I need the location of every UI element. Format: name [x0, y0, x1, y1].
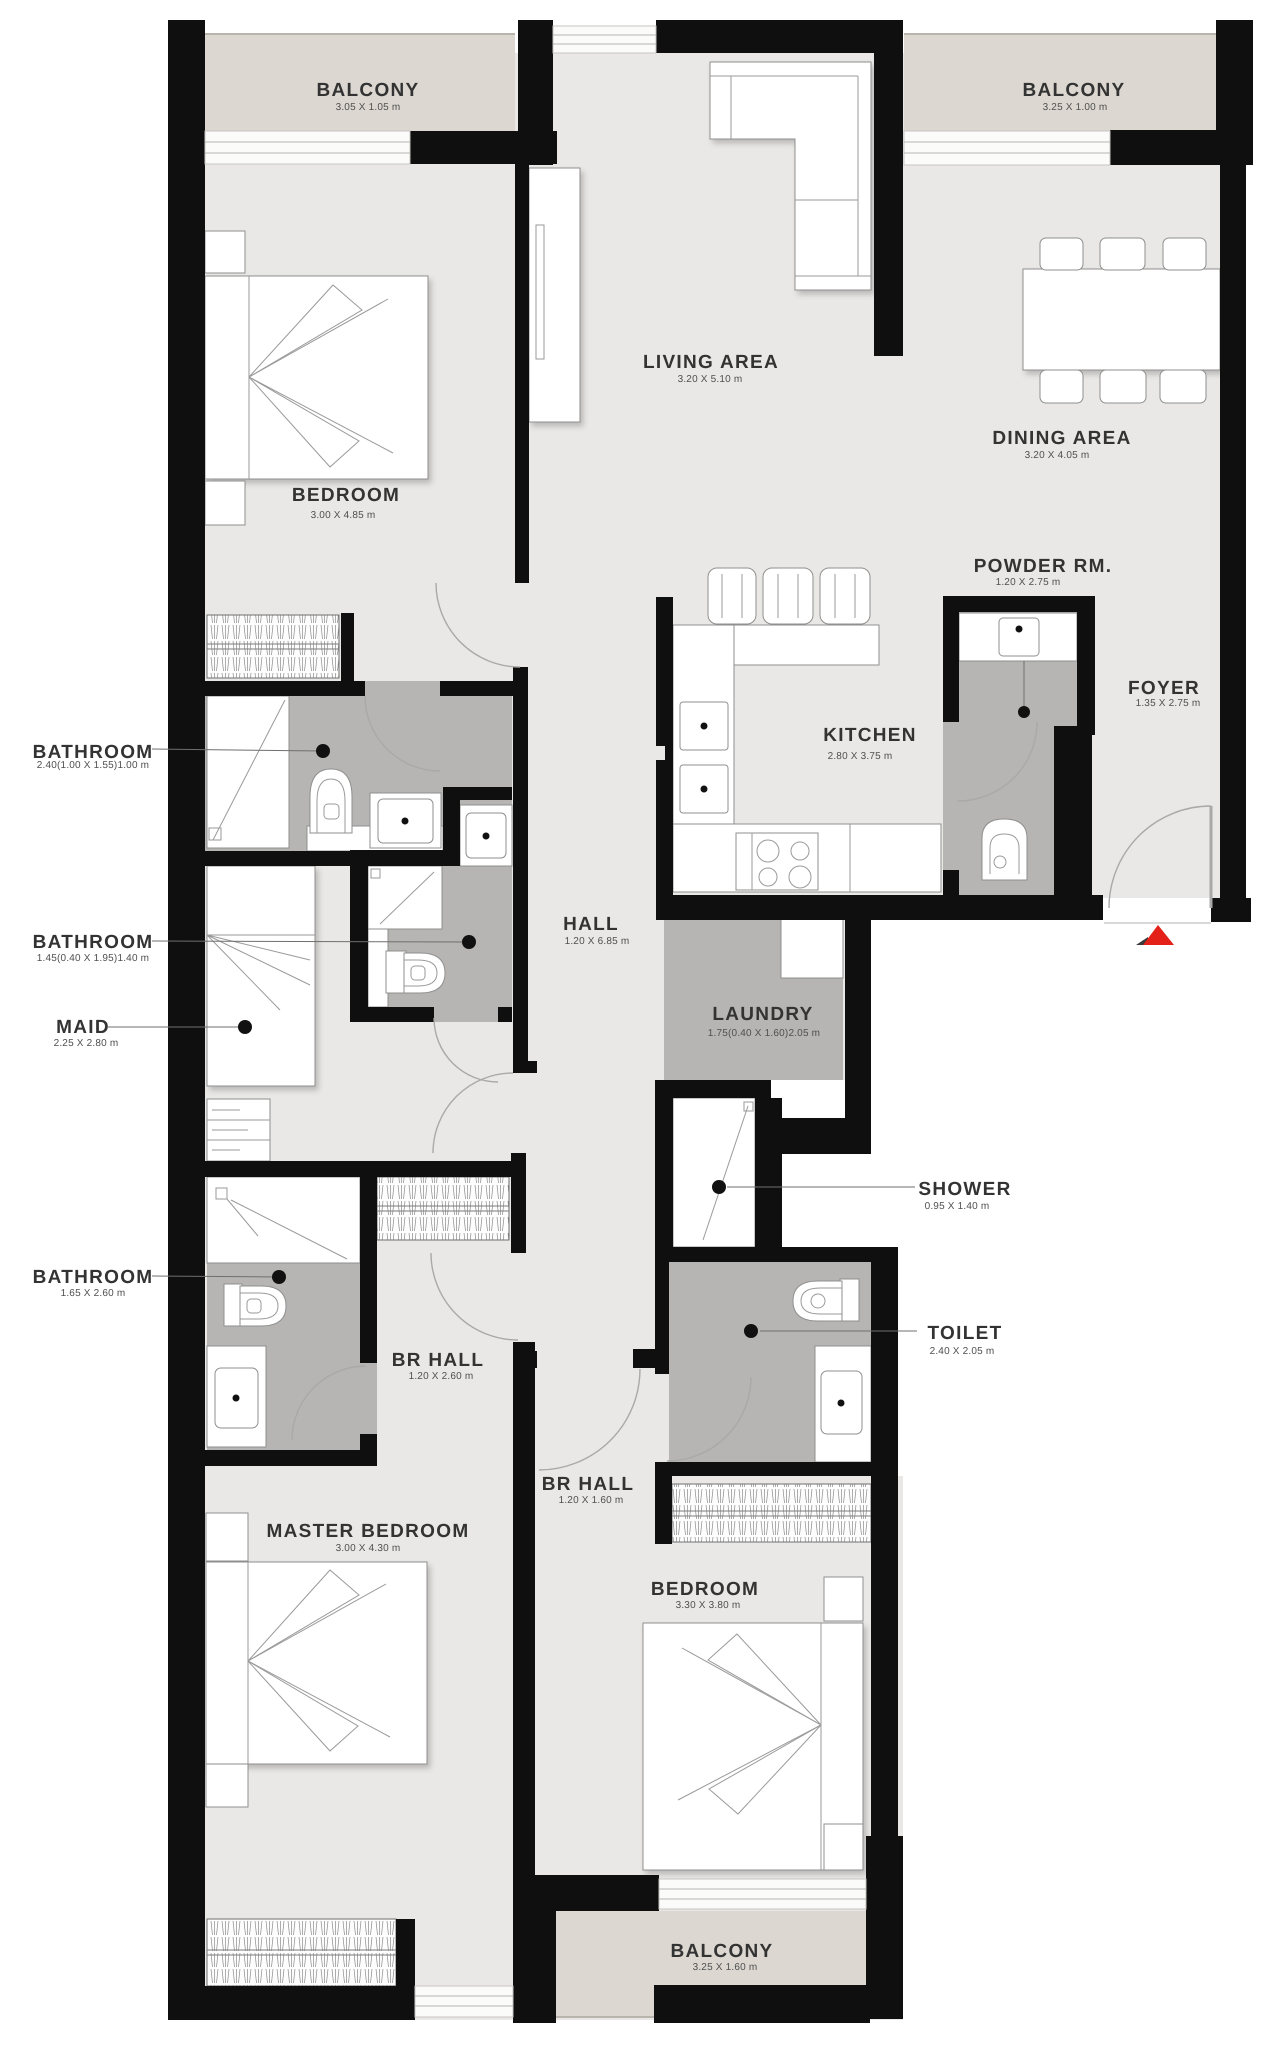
svg-text:3.00 X 4.85 m: 3.00 X 4.85 m	[311, 510, 376, 521]
svg-text:HALL: HALL	[563, 914, 619, 935]
svg-text:BR HALL: BR HALL	[392, 1350, 484, 1371]
svg-text:3.25 X 1.00 m: 3.25 X 1.00 m	[1043, 102, 1108, 113]
svg-text:TOILET: TOILET	[927, 1323, 1002, 1344]
svg-text:2.40(1.00 X 1.55)1.00 m: 2.40(1.00 X 1.55)1.00 m	[37, 760, 149, 771]
svg-text:1.20 X 6.85 m: 1.20 X 6.85 m	[565, 936, 630, 947]
svg-text:3.30 X 3.80 m: 3.30 X 3.80 m	[676, 1600, 741, 1611]
svg-text:3.25 X 1.60 m: 3.25 X 1.60 m	[693, 1962, 758, 1973]
svg-text:3.00 X 4.30 m: 3.00 X 4.30 m	[336, 1543, 401, 1554]
svg-text:BATHROOM: BATHROOM	[33, 1267, 154, 1288]
svg-text:BEDROOM: BEDROOM	[651, 1579, 759, 1600]
svg-text:BEDROOM: BEDROOM	[292, 485, 400, 506]
svg-text:BALCONY: BALCONY	[1022, 80, 1125, 101]
svg-text:BALCONY: BALCONY	[316, 80, 419, 101]
svg-text:LAUNDRY: LAUNDRY	[712, 1004, 813, 1025]
svg-text:1.35 X 2.75 m: 1.35 X 2.75 m	[1136, 698, 1201, 709]
svg-text:1.20 X 1.60 m: 1.20 X 1.60 m	[559, 1495, 624, 1506]
svg-text:POWDER RM.: POWDER RM.	[974, 556, 1113, 577]
svg-text:1.75(0.40 X 1.60)2.05 m: 1.75(0.40 X 1.60)2.05 m	[708, 1028, 820, 1039]
svg-text:MASTER BEDROOM: MASTER BEDROOM	[267, 1521, 470, 1542]
svg-text:LIVING AREA: LIVING AREA	[643, 352, 779, 373]
svg-text:2.40 X 2.05 m: 2.40 X 2.05 m	[930, 1346, 995, 1357]
svg-text:BALCONY: BALCONY	[670, 1941, 773, 1962]
svg-text:0.95 X 1.40 m: 0.95 X 1.40 m	[925, 1201, 990, 1212]
svg-text:SHOWER: SHOWER	[918, 1179, 1011, 1200]
svg-text:1.45(0.40 X 1.95)1.40 m: 1.45(0.40 X 1.95)1.40 m	[37, 953, 149, 964]
svg-text:BR HALL: BR HALL	[542, 1474, 634, 1495]
svg-text:DINING AREA: DINING AREA	[992, 428, 1131, 449]
svg-text:3.05 X 1.05 m: 3.05 X 1.05 m	[336, 102, 401, 113]
svg-text:BATHROOM: BATHROOM	[33, 932, 154, 953]
svg-text:MAID: MAID	[56, 1017, 110, 1038]
svg-text:3.20 X 5.10 m: 3.20 X 5.10 m	[678, 374, 743, 385]
svg-text:1.20 X 2.75 m: 1.20 X 2.75 m	[996, 577, 1061, 588]
svg-text:1.65 X 2.60 m: 1.65 X 2.60 m	[61, 1288, 126, 1299]
svg-text:2.80 X 3.75 m: 2.80 X 3.75 m	[828, 751, 893, 762]
svg-text:KITCHEN: KITCHEN	[823, 725, 917, 746]
svg-text:3.20 X 4.05 m: 3.20 X 4.05 m	[1025, 450, 1090, 461]
svg-text:FOYER: FOYER	[1128, 678, 1200, 699]
svg-text:2.25 X 2.80 m: 2.25 X 2.80 m	[54, 1038, 119, 1049]
svg-text:1.20 X 2.60 m: 1.20 X 2.60 m	[409, 1371, 474, 1382]
